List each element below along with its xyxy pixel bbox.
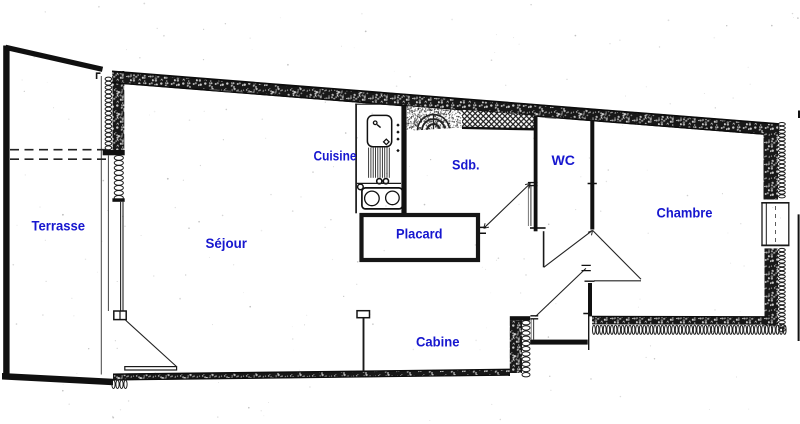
svg-text:Cabine: Cabine: [416, 334, 460, 350]
svg-text:WC: WC: [552, 152, 576, 168]
svg-text:Séjour: Séjour: [206, 235, 248, 251]
svg-text:Cuisine: Cuisine: [314, 148, 357, 164]
svg-text:Sdb.: Sdb.: [452, 157, 480, 173]
svg-text:Placard: Placard: [396, 226, 443, 242]
svg-text:Terrasse: Terrasse: [32, 218, 86, 234]
svg-text:Chambre: Chambre: [657, 205, 713, 221]
